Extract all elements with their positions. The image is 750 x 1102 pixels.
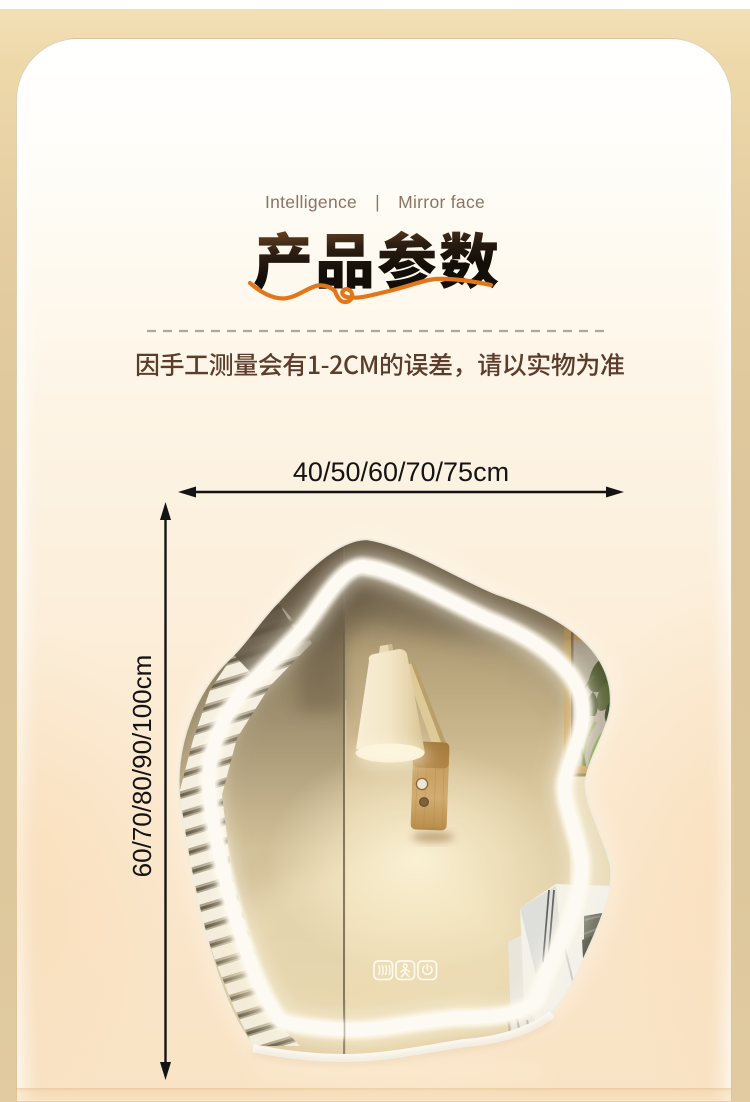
svg-text:60/70/80/90/100cm: 60/70/80/90/100cm <box>127 655 157 878</box>
svg-text:Intelligence | Mirror face: Intelligence | Mirror face <box>265 192 485 212</box>
svg-text:40/50/60/70/75cm: 40/50/60/70/75cm <box>293 457 509 487</box>
